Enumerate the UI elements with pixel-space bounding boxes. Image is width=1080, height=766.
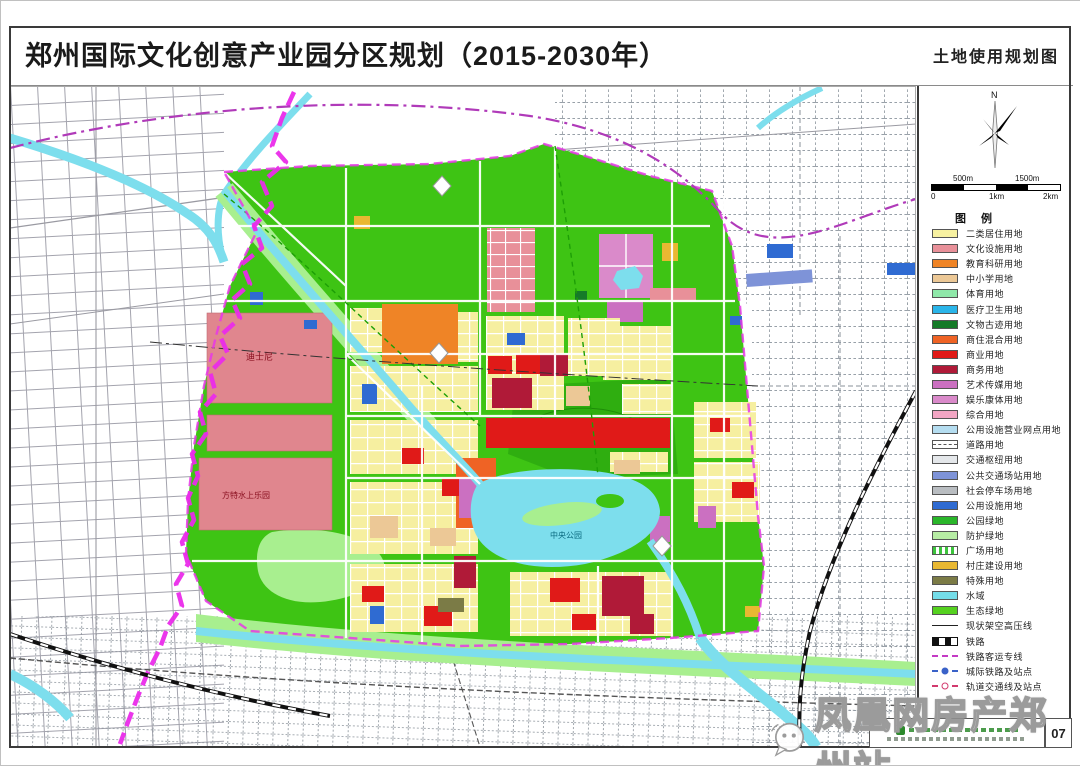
credit-text-line: [887, 737, 1027, 741]
legend-item: 交通枢纽用地: [932, 452, 1072, 467]
legend-swatch: [932, 350, 958, 359]
scale-label: 1500m: [1015, 174, 1039, 183]
legend-item: 特殊用地: [932, 573, 1072, 588]
legend-label: 公用设施营业网点用地: [966, 423, 1061, 436]
credit-box: [869, 718, 1045, 748]
legend-swatch: [932, 531, 958, 540]
legend-item: 娱乐康体用地: [932, 392, 1072, 407]
legend-swatch: [932, 455, 958, 464]
legend-item: 轨道交通线及站点: [932, 679, 1072, 694]
legend-item: 城际铁路及站点: [932, 664, 1072, 679]
credit-logo-icon: [896, 726, 905, 735]
legend-swatch: [932, 471, 958, 480]
legend-label: 教育科研用地: [966, 257, 1023, 270]
legend-label: 水域: [966, 589, 985, 602]
legend-item: 二类居住用地: [932, 226, 1072, 241]
legend-label: 医疗卫生用地: [966, 303, 1023, 316]
legend-swatch: [932, 606, 958, 615]
legend-label: 商住混合用地: [966, 333, 1023, 346]
legend-swatch: [932, 395, 958, 404]
legend-label: 村庄建设用地: [966, 559, 1023, 572]
legend-item: 现状架空高压线: [932, 618, 1072, 633]
legend-label: 防护绿地: [966, 529, 1004, 542]
legend-label: 公共交通场站用地: [966, 469, 1042, 482]
planning-map-page: 郑州国际文化创意产业园分区规划（2015-2030年） 土地使用规划图: [0, 0, 1080, 766]
sheet-title: 土地使用规划图: [933, 43, 1059, 67]
legend-item: 防护绿地: [932, 528, 1072, 543]
legend-swatch: [932, 289, 958, 298]
legend-item: 商住混合用地: [932, 332, 1072, 347]
legend-list: 二类居住用地文化设施用地教育科研用地中小学用地体育用地医疗卫生用地文物古迹用地商…: [932, 226, 1072, 694]
legend-label: 体育用地: [966, 287, 1004, 300]
scale-bar-strip: [931, 184, 1061, 191]
legend-label: 商务用地: [966, 363, 1004, 376]
map-area: 迪士尼 方特水上乐园 中央公园: [10, 86, 916, 747]
legend-swatch: [932, 486, 958, 495]
legend-item: 医疗卫生用地: [932, 301, 1072, 316]
legend-swatch: [932, 516, 958, 525]
legend-swatch: [932, 365, 958, 374]
legend-item: 中小学用地: [932, 271, 1072, 286]
legend-panel: N 500m 1500m 0 1km 2km 图 例 二类居住用地文化设施用地教…: [917, 86, 1073, 748]
legend-item: 生态绿地: [932, 603, 1072, 618]
legend-item: 铁路客运专线: [932, 649, 1072, 664]
legend-swatch: [932, 380, 958, 389]
legend-swatch: [932, 501, 958, 510]
legend-item: 公园绿地: [932, 513, 1072, 528]
header-divider: [9, 85, 1073, 86]
legend-item: 广场用地: [932, 543, 1072, 558]
legend-label: 铁路: [966, 635, 985, 648]
legend-swatch: [932, 244, 958, 253]
legend-label: 中小学用地: [966, 272, 1014, 285]
legend-label: 轨道交通线及站点: [966, 680, 1042, 693]
legend-label: 综合用地: [966, 408, 1004, 421]
legend-swatch: [932, 305, 958, 314]
legend-swatch: [932, 561, 958, 570]
legend-swatch: [932, 591, 958, 600]
legend-label: 特殊用地: [966, 574, 1004, 587]
legend-swatch: [932, 335, 958, 344]
north-arrow: N: [965, 88, 1025, 170]
legend-label: 现状架空高压线: [966, 619, 1033, 632]
legend-swatch: [932, 410, 958, 419]
legend-item: 综合用地: [932, 407, 1072, 422]
legend-swatch: [932, 274, 958, 283]
legend-item: 教育科研用地: [932, 256, 1072, 271]
scale-label: 0: [931, 192, 935, 201]
svg-text:N: N: [991, 90, 998, 100]
legend-swatch: [932, 320, 958, 329]
legend-item: 道路用地: [932, 437, 1072, 452]
legend-swatch: [932, 229, 958, 238]
legend-label: 生态绿地: [966, 604, 1004, 617]
legend-item: 商业用地: [932, 347, 1072, 362]
legend-label: 商业用地: [966, 348, 1004, 361]
scale-label: 2km: [1043, 192, 1058, 201]
legend-swatch: [932, 576, 958, 585]
legend-item: 公共交通场站用地: [932, 468, 1072, 483]
legend-swatch: [932, 425, 958, 434]
legend-item: 艺术传媒用地: [932, 377, 1072, 392]
legend-label: 二类居住用地: [966, 227, 1023, 240]
legend-label: 文物古迹用地: [966, 318, 1023, 331]
legend-swatch: [932, 440, 958, 449]
page-title: 郑州国际文化创意产业园分区规划（2015-2030年）: [25, 34, 667, 73]
legend-swatch: [932, 637, 958, 646]
legend-label: 道路用地: [966, 438, 1004, 451]
legend-item: 水域: [932, 588, 1072, 603]
legend-item: 村庄建设用地: [932, 558, 1072, 573]
legend-title: 图 例: [955, 210, 998, 226]
legend-label: 社会停车场用地: [966, 484, 1033, 497]
legend-label: 文化设施用地: [966, 242, 1023, 255]
legend-item: 体育用地: [932, 286, 1072, 301]
credit-text-line: [909, 728, 1019, 732]
legend-swatch: [932, 259, 958, 268]
label-central-park: 中央公园: [550, 530, 582, 540]
legend-swatch: [932, 667, 958, 676]
legend-label: 娱乐康体用地: [966, 393, 1023, 406]
legend-swatch: [932, 682, 958, 691]
legend-label: 城际铁路及站点: [966, 665, 1033, 678]
legend-item: 商务用地: [932, 362, 1072, 377]
legend-item: 文物古迹用地: [932, 317, 1072, 332]
scale-bar: 500m 1500m 0 1km 2km: [931, 174, 1063, 206]
page-number: 07: [1045, 718, 1072, 748]
scale-label: 500m: [953, 174, 973, 183]
legend-item: 社会停车场用地: [932, 483, 1072, 498]
scale-label: 1km: [989, 192, 1004, 201]
legend-label: 广场用地: [966, 544, 1004, 557]
legend-label: 公用设施用地: [966, 499, 1023, 512]
map-canvas: 迪士尼 方特水上乐园 中央公园: [10, 86, 916, 747]
legend-swatch: [932, 652, 958, 661]
legend-swatch: [932, 621, 958, 630]
legend-label: 公园绿地: [966, 514, 1004, 527]
legend-swatch: [932, 546, 958, 555]
legend-item: 公用设施用地: [932, 498, 1072, 513]
legend-label: 艺术传媒用地: [966, 378, 1023, 391]
legend-label: 铁路客运专线: [966, 650, 1023, 663]
legend-item: 文化设施用地: [932, 241, 1072, 256]
label-disney: 迪士尼: [246, 351, 273, 362]
label-fantawild: 方特水上乐园: [222, 490, 270, 500]
legend-item: 公用设施营业网点用地: [932, 422, 1072, 437]
legend-item: 铁路: [932, 634, 1072, 649]
legend-label: 交通枢纽用地: [966, 453, 1023, 466]
